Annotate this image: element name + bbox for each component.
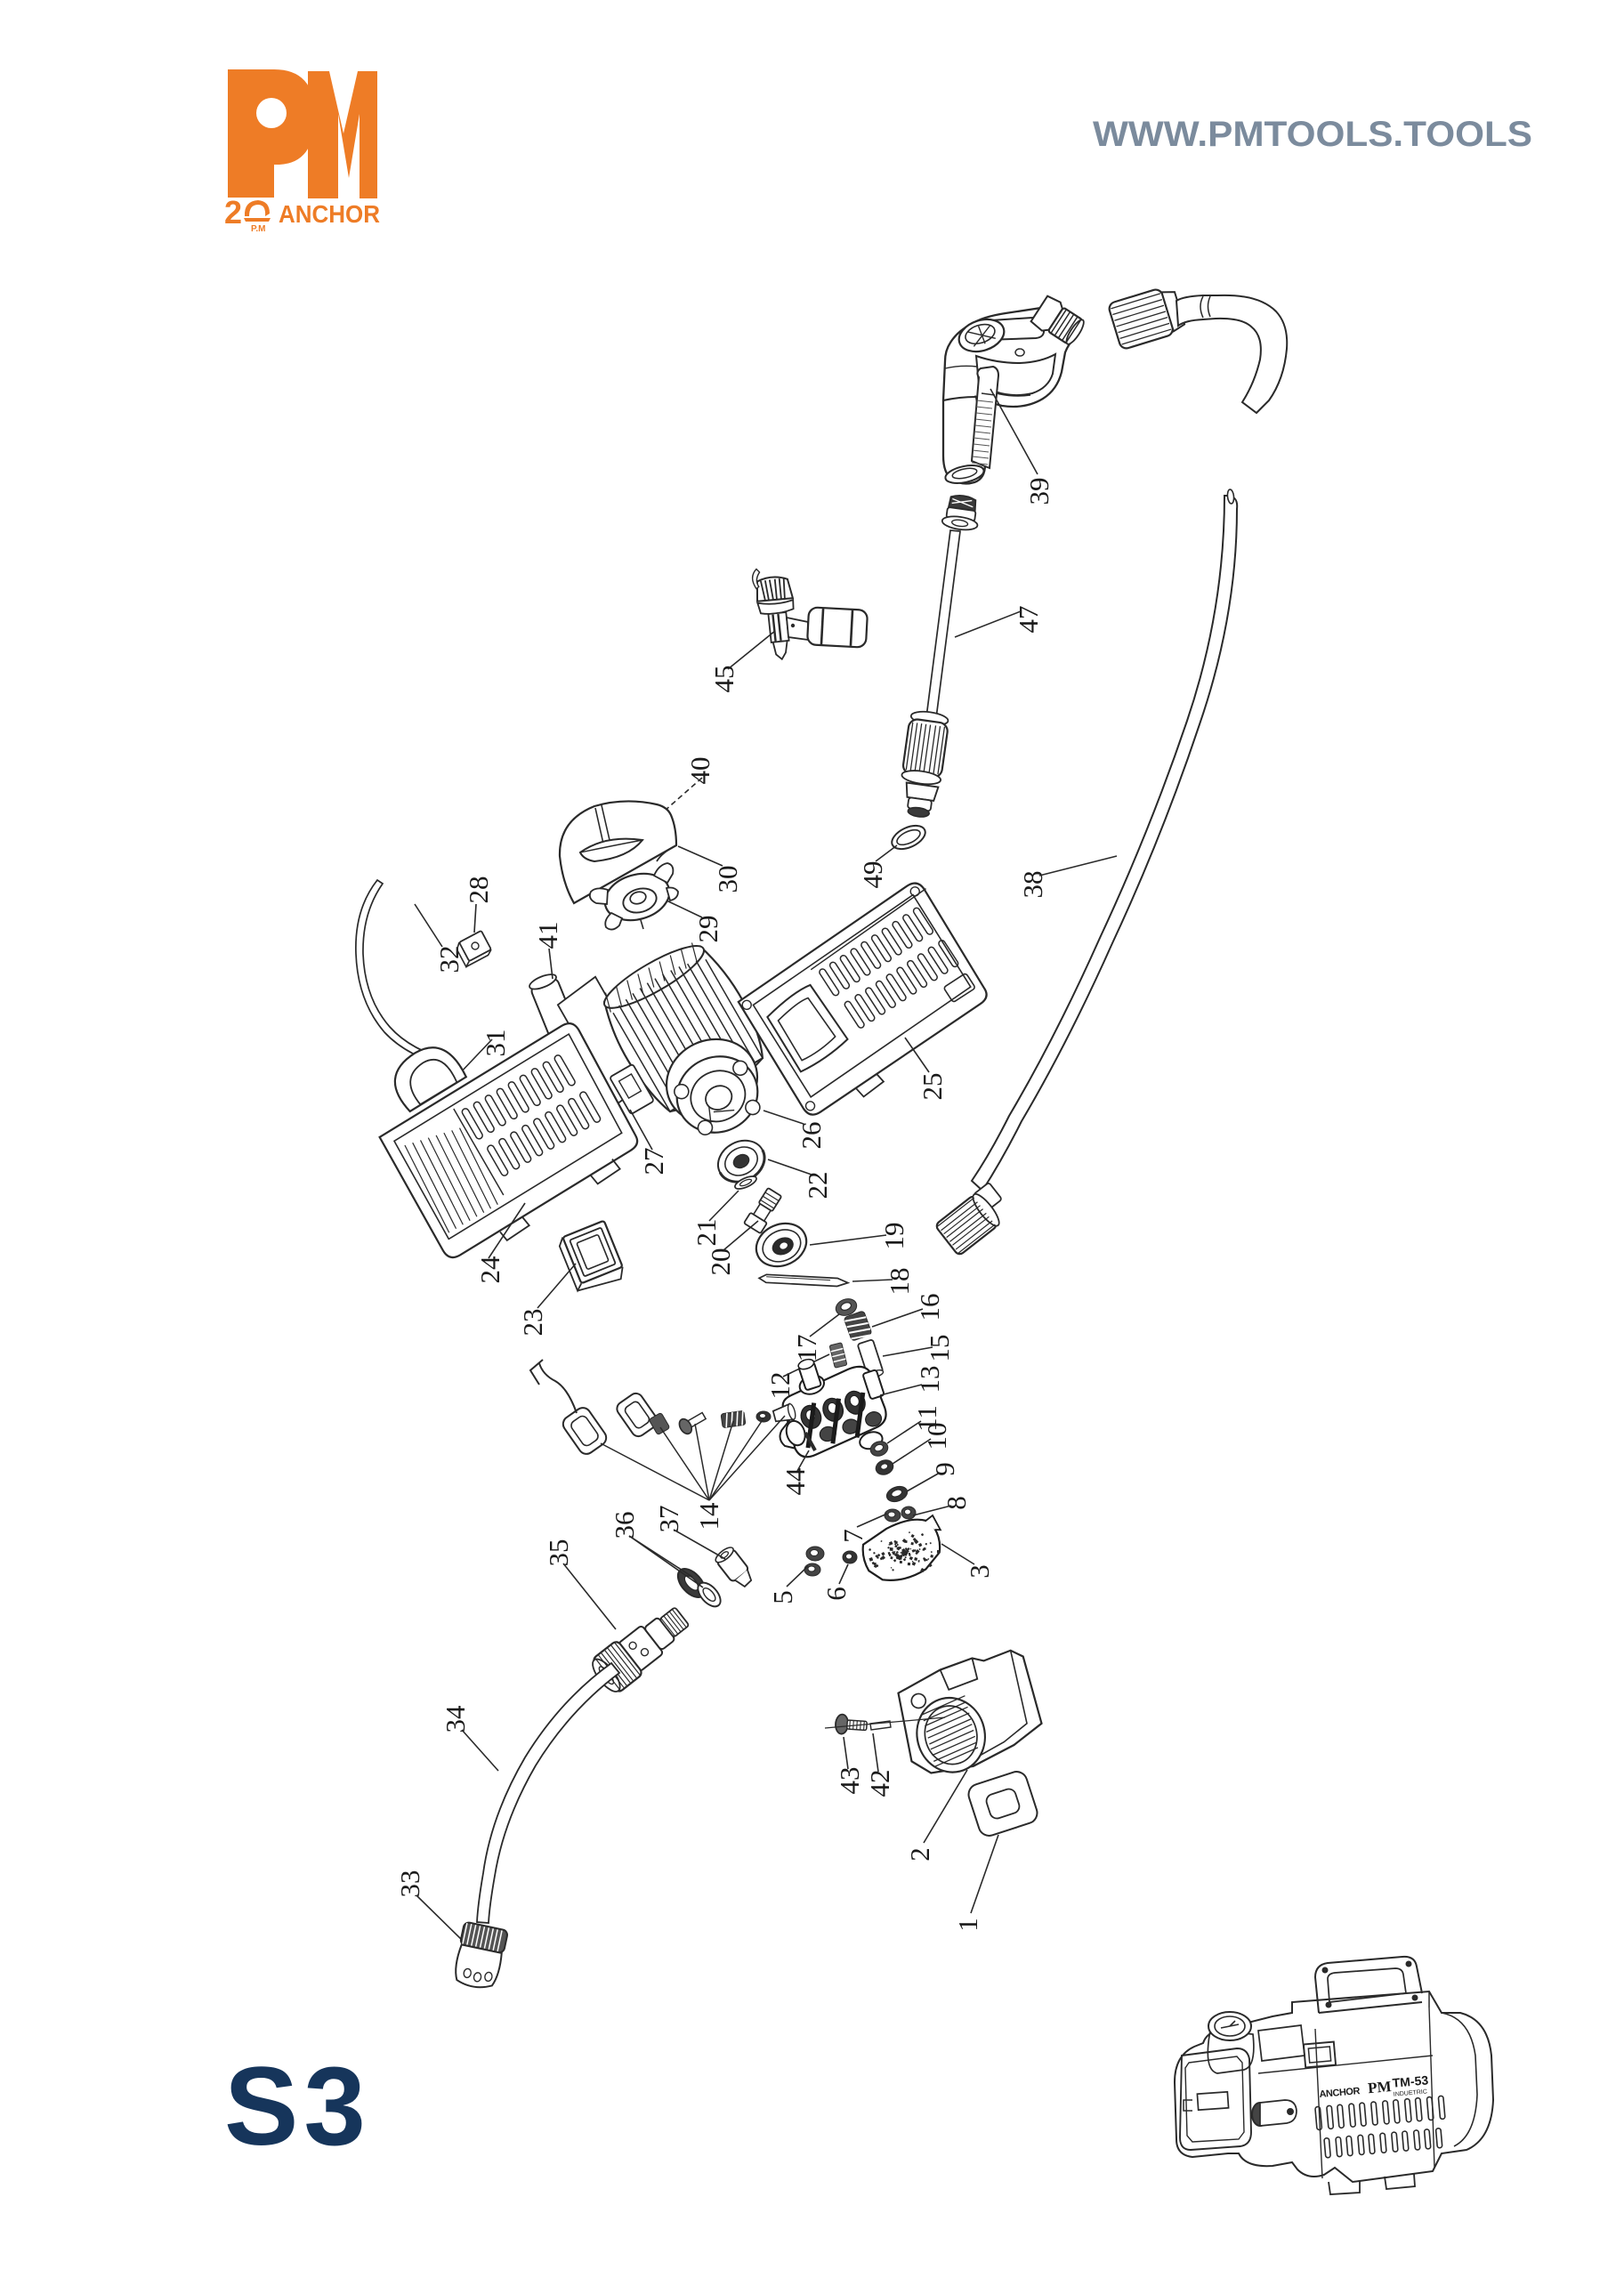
svg-text:20: 20: [705, 1248, 736, 1276]
svg-text:3: 3: [964, 1564, 995, 1579]
svg-text:49: 49: [857, 861, 888, 889]
svg-text:24: 24: [474, 1256, 505, 1284]
svg-text:9: 9: [929, 1462, 960, 1476]
svg-text:42: 42: [864, 1770, 895, 1797]
svg-text:27: 27: [638, 1148, 669, 1175]
svg-text:WWW.PMTOOLS.TOOLS: WWW.PMTOOLS.TOOLS: [1093, 115, 1532, 154]
svg-text:44: 44: [780, 1467, 811, 1496]
svg-text:30: 30: [712, 866, 743, 893]
svg-text:5: 5: [767, 1590, 798, 1604]
svg-text:47: 47: [1013, 606, 1044, 634]
svg-text:2: 2: [904, 1847, 935, 1862]
svg-text:6: 6: [820, 1587, 852, 1601]
svg-text:43: 43: [834, 1767, 865, 1795]
svg-text:18: 18: [884, 1268, 915, 1296]
svg-text:41: 41: [532, 922, 563, 949]
svg-text:22: 22: [802, 1172, 833, 1200]
svg-text:37: 37: [653, 1506, 684, 1533]
svg-text:35: 35: [543, 1539, 574, 1567]
svg-text:34: 34: [440, 1705, 471, 1733]
svg-text:26: 26: [796, 1122, 827, 1150]
svg-text:ANCHOR: ANCHOR: [279, 200, 380, 228]
svg-text:25: 25: [917, 1073, 948, 1101]
svg-text:36: 36: [609, 1512, 640, 1539]
svg-text:10: 10: [921, 1423, 952, 1450]
svg-text:31: 31: [480, 1030, 511, 1057]
svg-text:16: 16: [914, 1294, 945, 1321]
svg-text:21: 21: [691, 1219, 722, 1247]
svg-text:14: 14: [693, 1502, 724, 1531]
svg-text:S3: S3: [224, 2045, 371, 2169]
svg-text:P.M: P.M: [251, 224, 266, 234]
svg-text:33: 33: [394, 1870, 425, 1898]
svg-text:13: 13: [914, 1366, 945, 1393]
svg-text:17: 17: [791, 1335, 822, 1362]
svg-text:29: 29: [692, 916, 723, 943]
svg-text:39: 39: [1023, 478, 1054, 505]
svg-text:PM: PM: [1367, 2078, 1392, 2096]
svg-text:2: 2: [224, 194, 242, 230]
svg-text:7: 7: [837, 1529, 869, 1543]
svg-text:1: 1: [952, 1918, 983, 1932]
svg-text:23: 23: [517, 1309, 548, 1337]
svg-text:28: 28: [463, 876, 494, 904]
svg-text:45: 45: [708, 666, 739, 693]
svg-text:32: 32: [433, 946, 465, 973]
